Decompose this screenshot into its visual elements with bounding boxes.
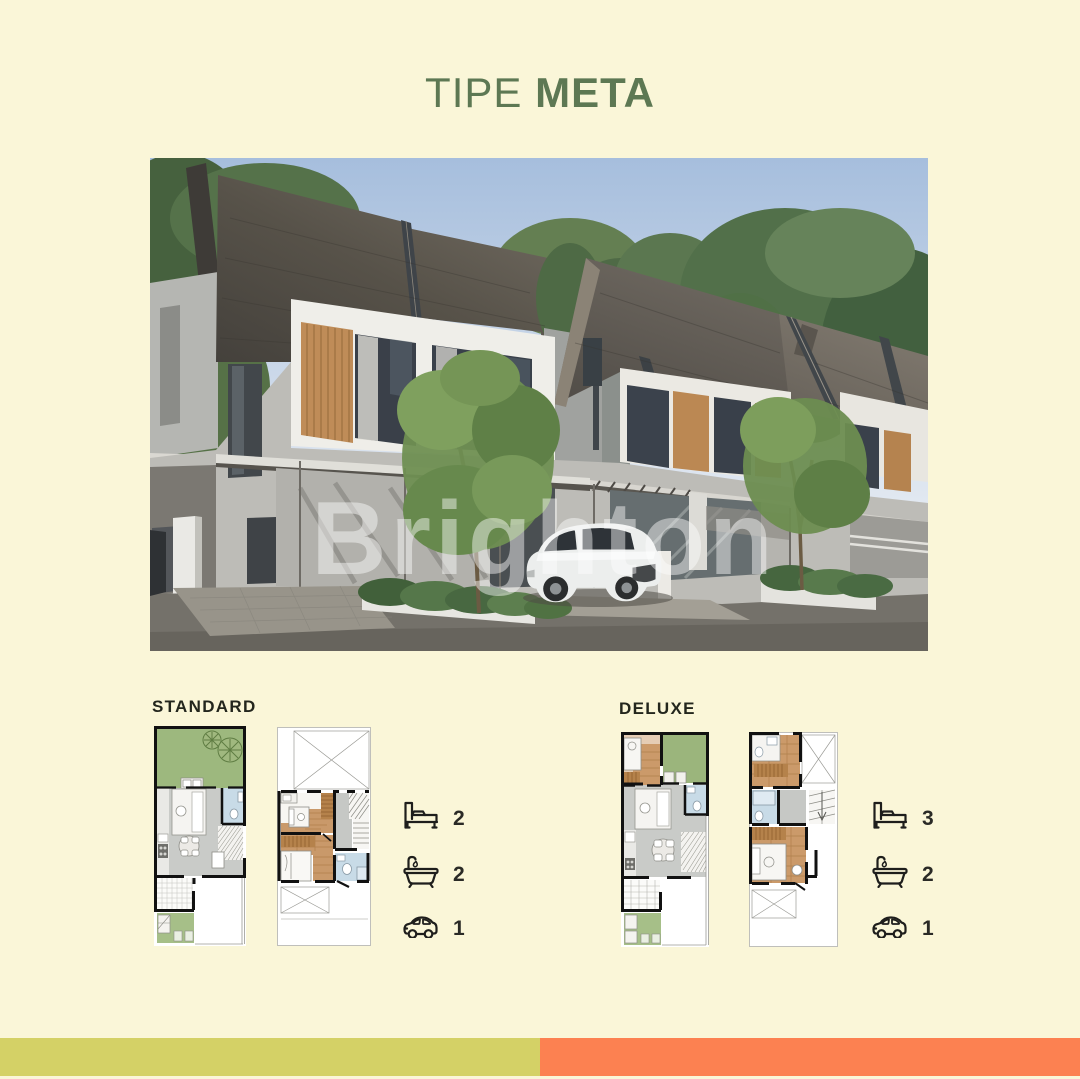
svg-text:Brighton: Brighton — [311, 481, 776, 597]
